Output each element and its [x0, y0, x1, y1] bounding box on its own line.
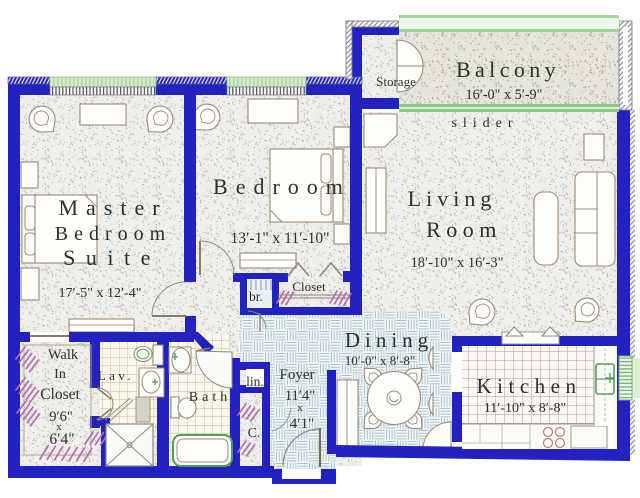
svg-text:17′-5" x 12′-4": 17′-5" x 12′-4": [59, 286, 142, 301]
svg-text:Bedroom: Bedroom: [213, 174, 351, 199]
svg-text:10′-0" x 8′-8": 10′-0" x 8′-8": [345, 353, 415, 368]
svg-text:Storage: Storage: [376, 74, 416, 89]
svg-text:Closet: Closet: [40, 386, 80, 403]
svg-text:Balcony: Balcony: [456, 57, 560, 82]
svg-text:Walk: Walk: [48, 347, 79, 363]
svg-text:Lav.: Lav.: [98, 368, 135, 383]
svg-text:11′-10" x 8′-8": 11′-10" x 8′-8": [484, 401, 566, 416]
svg-text:16′-0" x 5′-9": 16′-0" x 5′-9": [466, 87, 543, 103]
svg-text:slider: slider: [451, 116, 518, 131]
svg-text:4′1": 4′1": [290, 416, 314, 432]
svg-text:C.: C.: [248, 426, 261, 441]
svg-text:Closet: Closet: [292, 279, 326, 294]
svg-text:x: x: [297, 402, 303, 414]
svg-text:Kitchen: Kitchen: [477, 374, 582, 398]
svg-text:In: In: [54, 367, 66, 382]
svg-text:lin.: lin.: [246, 374, 264, 389]
svg-text:br.: br.: [249, 289, 263, 304]
svg-text:Room: Room: [426, 217, 502, 242]
svg-text:13′-1" x 11′-10": 13′-1" x 11′-10": [231, 230, 330, 247]
svg-text:Bedroom: Bedroom: [55, 223, 171, 245]
svg-text:Master: Master: [58, 195, 167, 220]
svg-text:Foyer: Foyer: [280, 367, 315, 383]
svg-text:Bath: Bath: [189, 390, 231, 405]
svg-text:Living: Living: [408, 186, 497, 211]
svg-text:Suite: Suite: [63, 245, 161, 270]
svg-text:6′4": 6′4": [49, 431, 74, 448]
svg-text:18′-10" x 16′-3": 18′-10" x 16′-3": [410, 255, 503, 271]
svg-text:Dining: Dining: [345, 328, 433, 352]
